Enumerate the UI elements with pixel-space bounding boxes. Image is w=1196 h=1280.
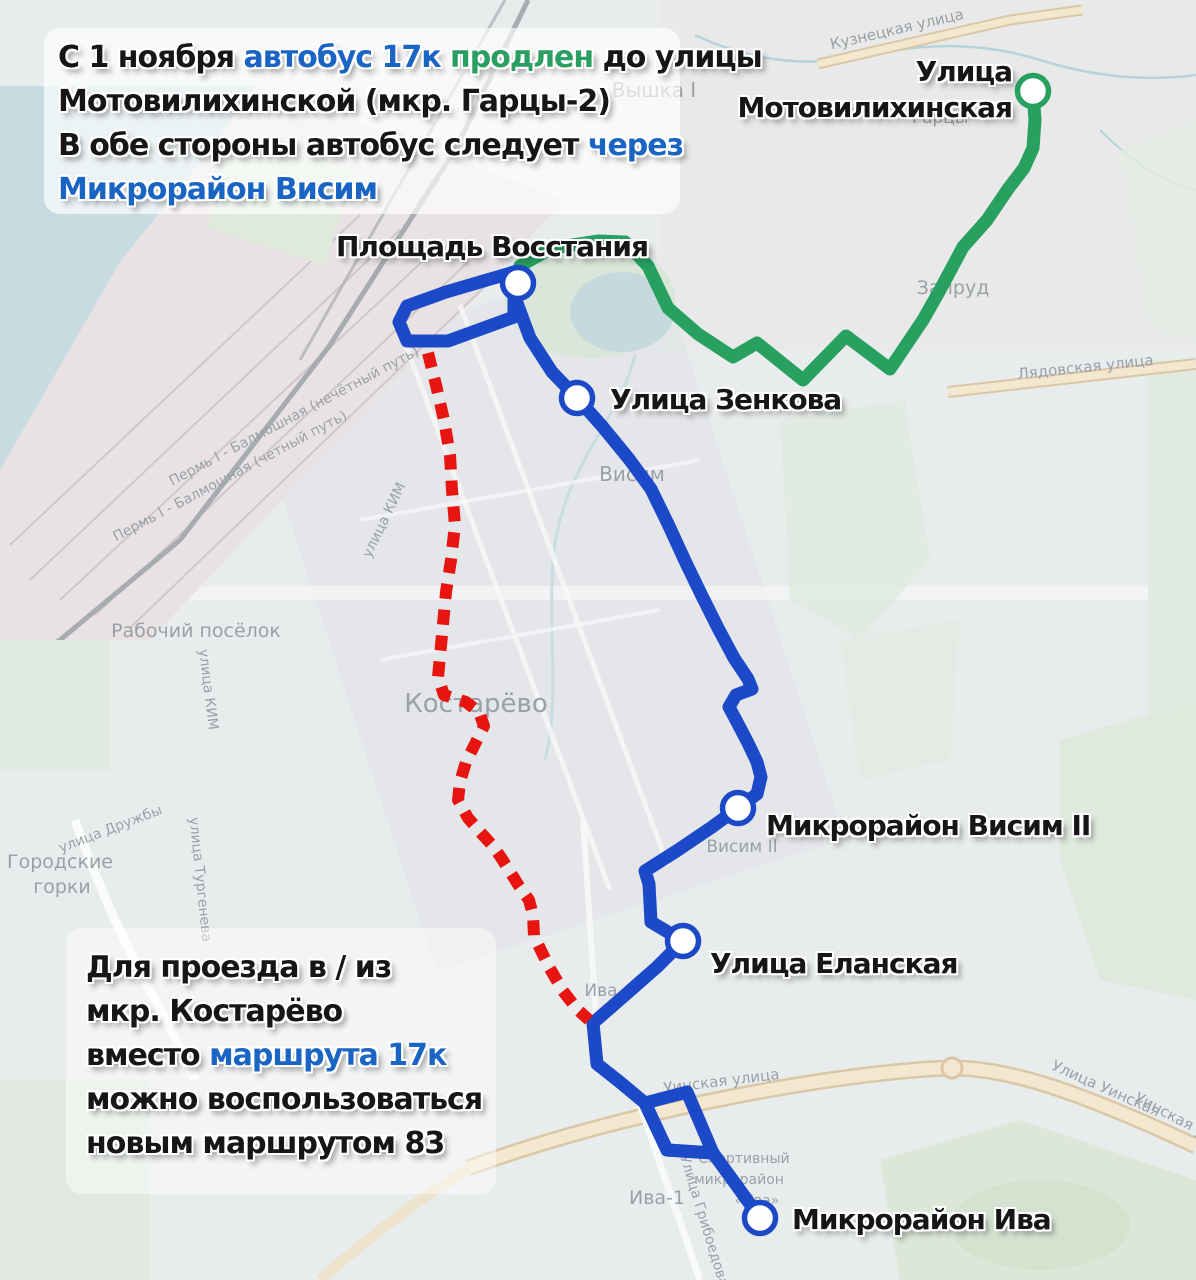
map-label: Рабочий посёлок — [111, 620, 281, 642]
map-label: Гарцы — [912, 108, 969, 128]
stop-ploshchad-vosstaniya-marker — [503, 268, 534, 299]
park — [0, 640, 110, 770]
info-box-top — [44, 28, 680, 214]
stop-ulitsa-zenkova-marker — [562, 383, 593, 414]
stop-ulitsa-motovilikhinskaya-marker — [1018, 76, 1049, 107]
stop-mikroraion-iva-marker — [745, 1203, 776, 1234]
map-label: Висим II — [706, 837, 777, 857]
forest-blob — [950, 1180, 1130, 1270]
map-label: Ива-1 — [629, 1187, 685, 1209]
map-label: Запруд — [917, 277, 990, 299]
stop-ulitsa-elanskaya-marker — [668, 926, 699, 957]
route-infographic-map: Вышка IКузнецкая улицаГарцыЗапрудЛядовск… — [0, 0, 1196, 1280]
info-box-bottom — [66, 928, 496, 1194]
green-area — [840, 620, 960, 780]
map-label: горки — [33, 876, 91, 898]
stop-mikroraion-visim-2-marker — [723, 793, 754, 824]
map-label: Городские — [7, 851, 113, 873]
